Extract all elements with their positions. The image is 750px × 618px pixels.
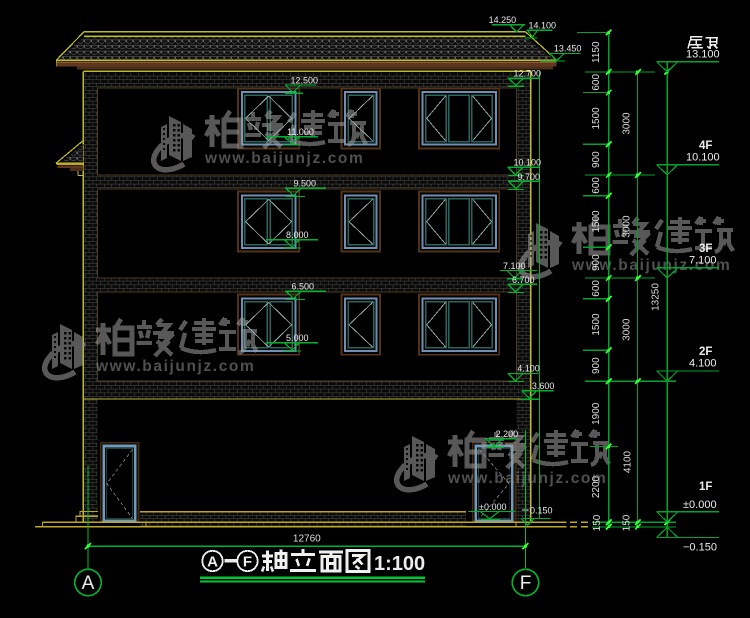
svg-text:13.100: 13.100 [686,49,720,61]
svg-text:1500: 1500 [591,313,602,336]
svg-text:−0.150: −0.150 [683,542,717,554]
svg-text:8.000: 8.000 [286,230,309,240]
svg-text:0.150: 0.150 [530,506,553,516]
svg-text:6.500: 6.500 [292,282,315,292]
svg-text:900: 900 [591,254,602,271]
svg-text:10.100: 10.100 [686,152,720,164]
svg-text:600: 600 [591,280,602,297]
svg-text:5.000: 5.000 [286,333,309,343]
svg-text:150: 150 [622,514,633,531]
svg-text:12.500: 12.500 [291,76,319,86]
svg-text:3.600: 3.600 [532,381,555,391]
svg-text:F: F [243,554,252,571]
svg-text:9.500: 9.500 [294,179,317,189]
svg-text:1500: 1500 [591,210,602,233]
svg-text:A: A [82,573,95,594]
svg-text:4.100: 4.100 [517,364,540,374]
svg-text:11.000: 11.000 [287,127,314,137]
svg-text:9.700: 9.700 [518,172,541,182]
svg-text:12.700: 12.700 [514,69,542,79]
svg-text:2F: 2F [699,346,712,358]
svg-text:14.250: 14.250 [489,15,517,25]
svg-text:±0.000: ±0.000 [479,502,506,512]
svg-text:13.450: 13.450 [554,43,582,53]
svg-text:4.100: 4.100 [689,358,717,370]
svg-text:900: 900 [591,357,602,374]
svg-text:3000: 3000 [622,112,633,135]
svg-text:3F: 3F [699,243,712,255]
svg-text:2200: 2200 [591,475,602,498]
svg-text:900: 900 [591,151,602,168]
svg-text:3000: 3000 [622,215,633,238]
svg-text:1150: 1150 [591,41,602,63]
svg-text:±0.000: ±0.000 [683,499,717,511]
svg-text:2.200: 2.200 [496,429,519,439]
svg-text:7.100: 7.100 [689,255,717,267]
svg-text:6.700: 6.700 [512,275,535,285]
svg-text:1F: 1F [699,481,712,493]
svg-text:4100: 4100 [623,450,634,473]
svg-text:A: A [207,554,218,571]
svg-text:600: 600 [591,74,602,91]
svg-text:10.100: 10.100 [514,158,542,168]
svg-text:4F: 4F [699,140,712,152]
svg-text:F: F [520,573,532,594]
svg-text:150: 150 [592,514,603,531]
svg-text:14.100: 14.100 [529,21,557,31]
svg-text:600: 600 [591,177,602,194]
svg-text:1500: 1500 [591,107,602,130]
svg-text:1:100: 1:100 [374,553,425,575]
svg-text:1900: 1900 [591,402,602,425]
svg-text:3000: 3000 [622,318,633,341]
svg-text:12760: 12760 [293,534,321,545]
svg-text:13250: 13250 [651,283,662,311]
svg-text:7.100: 7.100 [503,261,526,271]
